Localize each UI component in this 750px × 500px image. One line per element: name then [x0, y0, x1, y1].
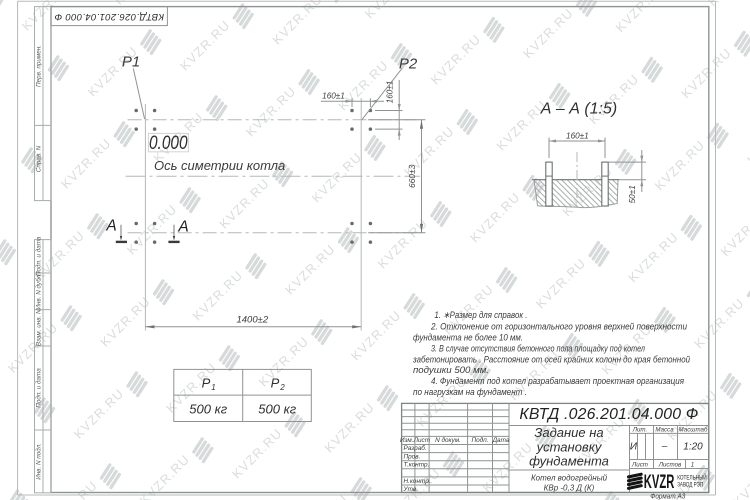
- svg-text:Р2: Р2: [399, 56, 418, 73]
- svg-text:1: 1: [211, 383, 215, 392]
- svg-text:Лист: Лист: [631, 461, 648, 468]
- svg-text:50±1: 50±1: [628, 185, 637, 203]
- svg-text:Подп.: Подп.: [471, 436, 488, 444]
- svg-text:Р: Р: [271, 376, 280, 391]
- svg-text:KVZR: KVZR: [644, 471, 675, 493]
- svg-text:160±1: 160±1: [566, 132, 589, 141]
- svg-text:–: –: [661, 441, 668, 452]
- svg-text:2. Отклонение от горизонтально: 2. Отклонение от горизонтального уровня …: [430, 322, 687, 332]
- svg-text:160±1: 160±1: [386, 81, 395, 104]
- svg-text:4. Фундамент под котел разраба: 4. Фундамент под котел разрабатывает про…: [431, 376, 684, 386]
- svg-text:Утв.: Утв.: [403, 486, 419, 493]
- svg-text:Ось симетрии котла: Ось симетрии котла: [154, 158, 285, 173]
- svg-text:660±3: 660±3: [407, 164, 417, 187]
- svg-text:ЗАВОД РЭП: ЗАВОД РЭП: [677, 482, 703, 489]
- svg-text:N докум.: N докум.: [435, 436, 461, 444]
- svg-text:установку: установку: [536, 439, 603, 454]
- svg-text:КВТД.026.201.04.000 Ф: КВТД.026.201.04.000 Ф: [54, 11, 164, 22]
- svg-text:забетонировать . Расстояние от: забетонировать . Расстояние от осей край…: [412, 354, 690, 364]
- svg-text:А: А: [177, 219, 188, 236]
- svg-text:Котел водогрейный: Котел водогрейный: [531, 474, 608, 483]
- svg-text:по нагрузкам на фундамент .: по нагрузкам на фундамент .: [413, 387, 527, 397]
- svg-text:1. ∗Размер для справок .: 1. ∗Размер для справок .: [434, 310, 527, 320]
- svg-text:Дата: Дата: [492, 437, 510, 444]
- svg-text:Справ. N: Справ. N: [35, 145, 42, 172]
- svg-text:Р1: Р1: [122, 54, 140, 71]
- svg-text:1:20: 1:20: [683, 442, 703, 453]
- svg-text:КВТД .026.201.04.000 Ф: КВТД .026.201.04.000 Ф: [519, 406, 698, 423]
- svg-text:фундамента: фундамента: [529, 454, 609, 469]
- svg-text:Листов: Листов: [658, 461, 682, 468]
- svg-text:500 кг: 500 кг: [258, 402, 296, 417]
- svg-text:Т.контр.: Т.контр.: [404, 461, 430, 468]
- svg-text:Формат А3: Формат А3: [650, 492, 686, 500]
- svg-text:Н.контр.: Н.контр.: [404, 478, 431, 485]
- svg-text:3. В случае отсутствия бетонно: 3. В случае отсутствия бетонного пола пл…: [431, 344, 645, 354]
- svg-text:И: И: [630, 442, 638, 453]
- svg-text:Инв. N подл.: Инв. N подл.: [34, 443, 42, 480]
- svg-text:А: А: [105, 218, 116, 235]
- svg-text:Р: Р: [202, 376, 211, 391]
- svg-text:Подп. и дата: Подп. и дата: [34, 236, 42, 276]
- svg-text:160±1: 160±1: [322, 92, 345, 101]
- svg-text:Задание на: Задание на: [534, 425, 603, 440]
- svg-text:Взам. инв. N: Взам. инв. N: [35, 309, 42, 346]
- svg-text:0.000: 0.000: [149, 133, 188, 154]
- svg-text:Масса: Масса: [655, 426, 674, 433]
- svg-text:500 кг: 500 кг: [189, 402, 227, 417]
- svg-text:фундамента не более 10 мм.: фундамента не более 10 мм.: [413, 333, 523, 343]
- svg-text:А – А (1:5): А – А (1:5): [540, 101, 617, 118]
- svg-text:Лит.: Лит.: [632, 426, 648, 433]
- svg-text:Подп. и дата: Подп. и дата: [34, 368, 42, 408]
- svg-text:Инв. N дубл.: Инв. N дубл.: [34, 273, 42, 309]
- svg-text:2: 2: [279, 383, 285, 392]
- svg-text:Пров.: Пров.: [404, 453, 421, 460]
- svg-text:Изм.Лист: Изм.Лист: [400, 437, 431, 444]
- svg-text:Масштаб: Масштаб: [679, 426, 708, 433]
- svg-text:Перв. примен.: Перв. примен.: [35, 45, 42, 87]
- svg-text:Разраб.: Разраб.: [404, 444, 427, 452]
- svg-text:подушки 500 мм.: подушки 500 мм.: [413, 365, 489, 375]
- svg-text:КВр -0,3 Д (К): КВр -0,3 Д (К): [544, 484, 595, 493]
- svg-text:1400±2: 1400±2: [236, 315, 268, 326]
- svg-text:1: 1: [691, 461, 694, 468]
- svg-text:КОТЕЛЬНЫЙ: КОТЕЛЬНЫЙ: [677, 474, 707, 482]
